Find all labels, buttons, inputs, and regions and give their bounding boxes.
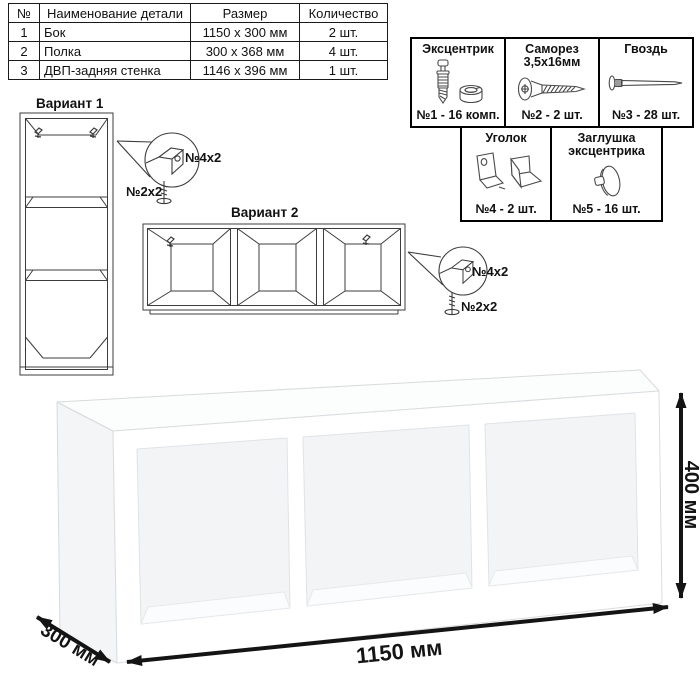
- hardware-title: Саморез 3,5х16мм: [506, 43, 598, 69]
- table-row: 2 Полка 300 x 368 мм 4 шт.: [9, 42, 388, 61]
- hardware-qty: №5 - 16 шт.: [572, 203, 640, 216]
- variant2-screw-count-label: №2х2: [461, 299, 497, 314]
- hardware-qty: №4 - 2 шт.: [475, 203, 536, 216]
- corner-bracket-icon: [467, 145, 545, 203]
- variant1-drawing: [20, 113, 113, 375]
- part-name: Полка: [40, 42, 191, 61]
- width-dimension-label: 1150 мм: [355, 635, 443, 669]
- hardware-item-screw: Саморез 3,5х16мм №2 - 2 шт.: [506, 39, 600, 126]
- hardware-box-bottom-row: Уголок №4 - 2 шт. Заглушка эксцентрика №…: [460, 126, 663, 222]
- variant2-title: Вариант 2: [231, 205, 298, 220]
- variant1-bracket-count-label: №4х2: [185, 150, 221, 165]
- hardware-title: Эксцентрик: [422, 43, 494, 56]
- shelf-3d-render: [57, 370, 662, 663]
- screw-icon: [516, 69, 588, 109]
- hardware-title: Заглушка эксцентрика: [552, 132, 661, 158]
- hardware-qty: №2 - 2 шт.: [521, 109, 582, 122]
- part-quantity: 4 шт.: [300, 42, 388, 61]
- header-size: Размер: [191, 4, 300, 23]
- part-number: 3: [9, 61, 40, 80]
- variant1-screw-count-label: №2х2: [126, 184, 162, 199]
- hardware-item-corner-bracket: Уголок №4 - 2 шт.: [462, 128, 552, 220]
- part-quantity: 1 шт.: [300, 61, 388, 80]
- hardware-box-top-row: Эксцентрик №1 - 16 комп. Саморез 3,5х16м…: [410, 37, 694, 128]
- variant1-title: Вариант 1: [36, 96, 103, 111]
- height-dimension-label: 400 мм: [680, 461, 700, 530]
- variant2-bracket-count-label: №4х2: [472, 264, 508, 279]
- parts-table-header-row: № Наименование детали Размер Количество: [9, 4, 388, 23]
- header-quantity: Количество: [300, 4, 388, 23]
- hardware-item-cam-cap: Заглушка эксцентрика №5 - 16 шт.: [552, 128, 661, 220]
- eccentric-cam-icon: [426, 56, 490, 109]
- header-part-name: Наименование детали: [40, 4, 191, 23]
- part-number: 2: [9, 42, 40, 61]
- part-size: 1146 x 396 мм: [191, 61, 300, 80]
- hardware-item-eccentric: Эксцентрик №1 - 16 комп.: [412, 39, 506, 126]
- parts-table: № Наименование детали Размер Количество …: [8, 3, 388, 80]
- part-name: ДВП-задняя стенка: [40, 61, 191, 80]
- part-size: 1150 x 300 мм: [191, 23, 300, 42]
- table-row: 1 Бок 1150 x 300 мм 2 шт.: [9, 23, 388, 42]
- hardware-qty: №1 - 16 комп.: [416, 109, 499, 122]
- nail-icon: [607, 56, 685, 109]
- part-number: 1: [9, 23, 40, 42]
- variant2-drawing: [143, 224, 405, 314]
- hardware-qty: №3 - 28 шт.: [612, 109, 680, 122]
- hardware-title: Уголок: [485, 132, 526, 145]
- cam-cap-icon: [585, 158, 629, 203]
- header-number: №: [9, 4, 40, 23]
- part-name: Бок: [40, 23, 191, 42]
- hardware-title: Гвоздь: [624, 43, 668, 56]
- part-quantity: 2 шт.: [300, 23, 388, 42]
- hardware-item-nail: Гвоздь №3 - 28 шт.: [600, 39, 692, 126]
- part-size: 300 x 368 мм: [191, 42, 300, 61]
- table-row: 3 ДВП-задняя стенка 1146 x 396 мм 1 шт.: [9, 61, 388, 80]
